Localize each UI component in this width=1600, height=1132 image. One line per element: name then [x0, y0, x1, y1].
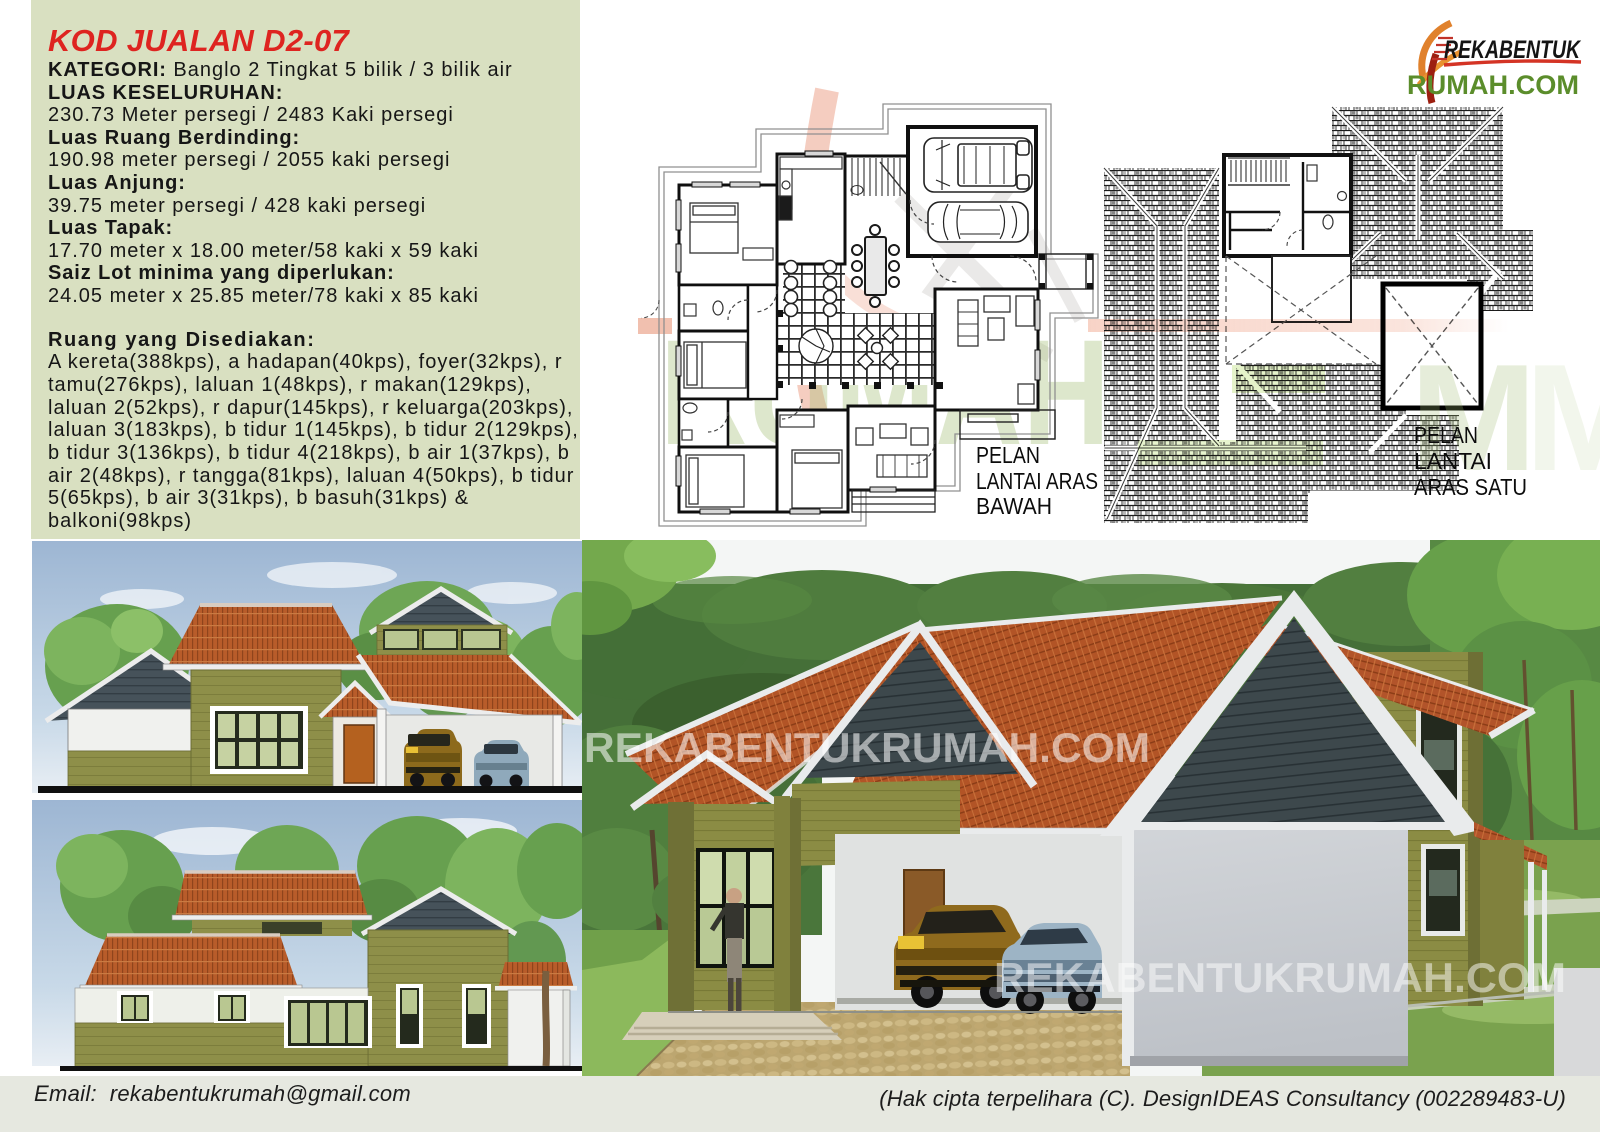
- svg-text:BAWAH: BAWAH: [976, 493, 1052, 519]
- svg-text:LANTAI: LANTAI: [1414, 448, 1492, 474]
- svg-text:LANTAI ARAS: LANTAI ARAS: [976, 468, 1098, 494]
- svg-text:ARAS SATU: ARAS SATU: [1414, 474, 1527, 500]
- svg-text:PELAN: PELAN: [976, 442, 1040, 468]
- svg-text:REKABENTUKRUMAH.COM: REKABENTUKRUMAH.COM: [994, 954, 1566, 1001]
- svg-text:M: M: [1525, 333, 1600, 503]
- svg-text:RUMAH.COM: RUMAH.COM: [1407, 70, 1579, 100]
- svg-text:PELAN: PELAN: [1414, 422, 1478, 448]
- svg-text:REKABENTUKRUMAH.COM: REKABENTUKRUMAH.COM: [584, 724, 1150, 771]
